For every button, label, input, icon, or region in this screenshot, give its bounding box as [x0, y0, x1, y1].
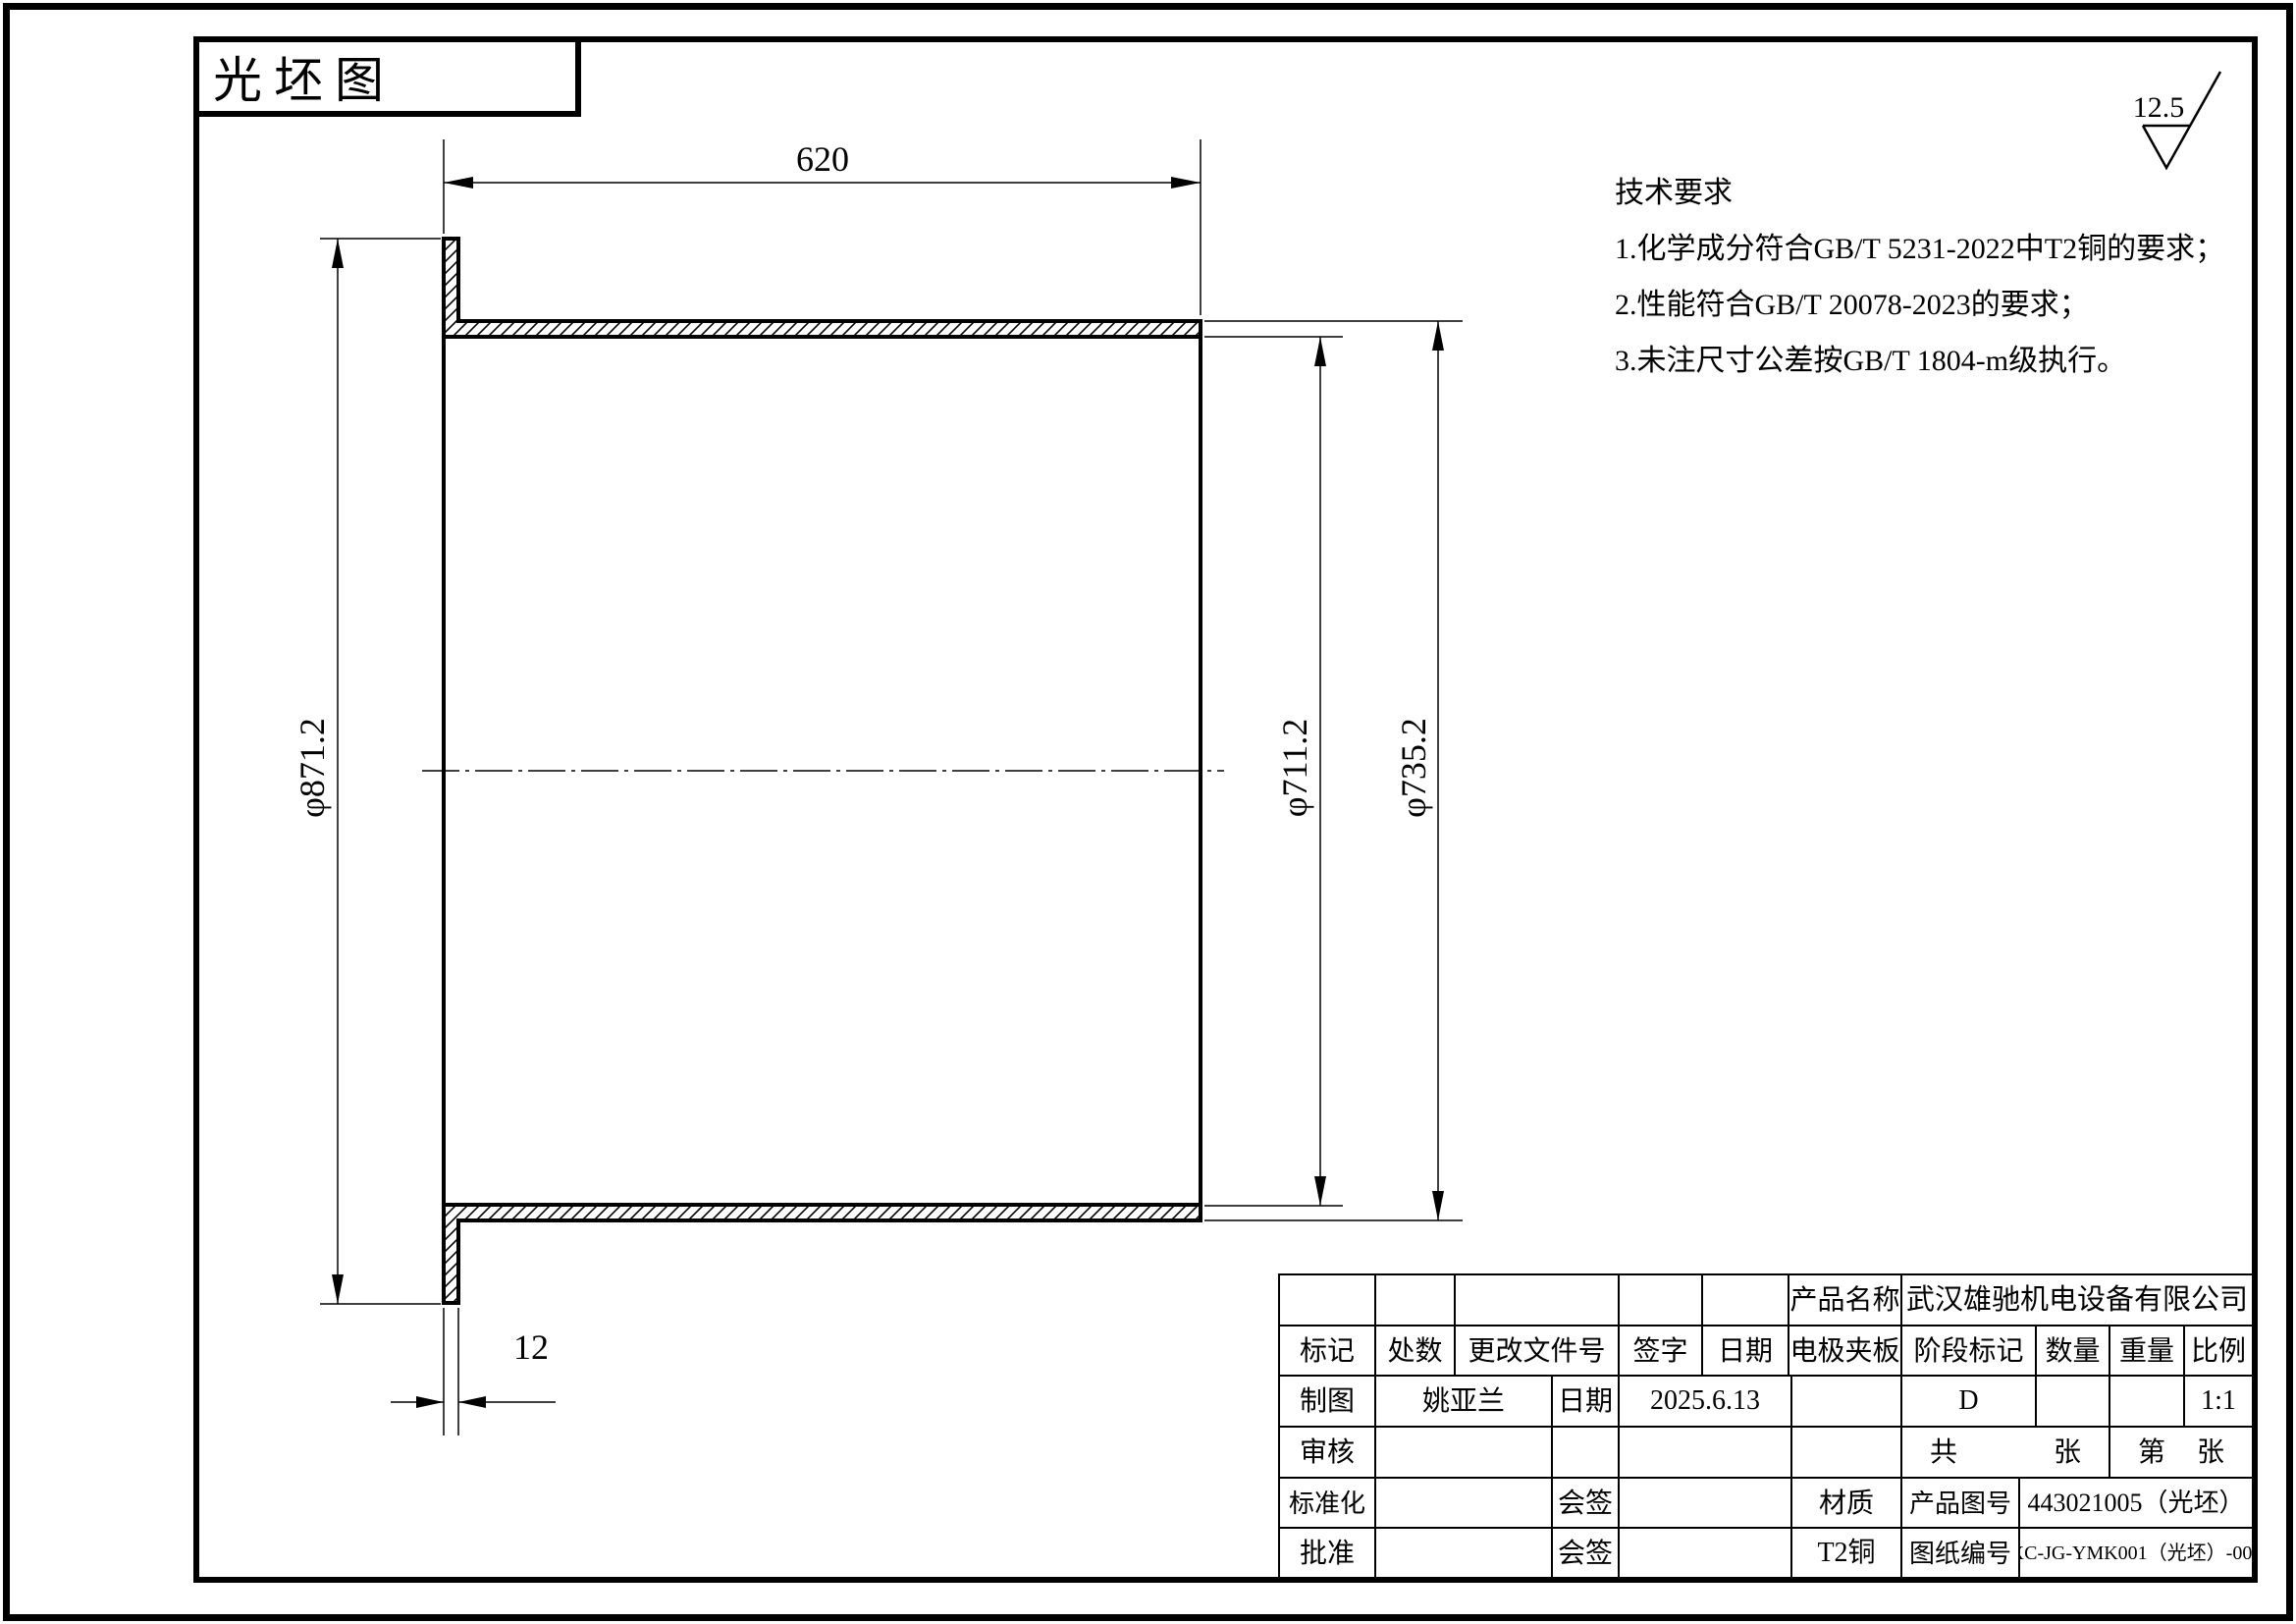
- dim-length-620: 620: [444, 139, 1201, 315]
- roughness-value: 12.5: [2133, 91, 2185, 124]
- tb-stage-mark-label: 阶段标记: [1900, 1325, 2035, 1375]
- dim-outer-diameter-text: φ735.2: [1394, 718, 1433, 818]
- tb-product-name-label: 产品名称: [1788, 1273, 1900, 1325]
- tb-cell-empty: [2035, 1375, 2109, 1426]
- arrowhead: [332, 1274, 344, 1304]
- dim-bore-diameter-text: φ711.2: [1275, 719, 1314, 817]
- tb-date-label: 日期: [1701, 1325, 1788, 1375]
- tb-cell-empty: [1790, 1426, 1900, 1477]
- tb-change-doc-label: 更改文件号: [1454, 1325, 1618, 1375]
- tb-cell-empty: [1374, 1527, 1551, 1577]
- tb-product-no-label: 产品图号: [1900, 1477, 2018, 1527]
- tb-cell-empty: [1701, 1273, 1788, 1325]
- part-bottom-wall-and-flange: [444, 1205, 1201, 1303]
- tb-signature-label: 签字: [1618, 1325, 1701, 1375]
- tb-drawing-no: XC-JG-YMK001（光坯）-005: [2018, 1527, 2252, 1577]
- arrowhead: [1314, 1176, 1326, 1206]
- tb-drawing-no-label: 图纸编号: [1900, 1527, 2018, 1577]
- tb-total-label: 共: [1930, 1438, 1957, 1466]
- tb-countersign-label: 会签: [1551, 1477, 1618, 1527]
- dim-flange-diameter: φ871.2: [293, 239, 441, 1304]
- tb-product-name-value: 电极夹板: [1788, 1325, 1900, 1375]
- part-top-wall-and-flange: [444, 239, 1201, 337]
- tb-sheet-no-cell: 第 张: [2109, 1426, 2252, 1477]
- tb-cell-empty: [1618, 1426, 1790, 1477]
- tb-cell-empty: [1551, 1426, 1618, 1477]
- tb-stage-value: D: [1900, 1375, 2035, 1426]
- tb-draft-date: 2025.6.13: [1618, 1375, 1790, 1426]
- dim-flange-thickness: 12: [391, 1308, 556, 1435]
- tb-cell-empty: [1278, 1273, 1374, 1325]
- tb-cell-empty: [1618, 1273, 1701, 1325]
- arrowhead: [1432, 1191, 1444, 1220]
- tb-mark-label: 标记: [1278, 1325, 1374, 1375]
- tb-countersign-label: 会签: [1551, 1527, 1618, 1577]
- tb-company-name: 武汉雄驰机电设备有限公司: [1900, 1273, 2252, 1325]
- tb-cell-empty: [1790, 1375, 1900, 1426]
- surface-roughness-symbol: 12.5: [2133, 72, 2220, 168]
- tb-total-sheets-cell: 共 张: [1900, 1426, 2109, 1477]
- tb-scale-label: 比例: [2183, 1325, 2252, 1375]
- arrowhead: [458, 1396, 486, 1408]
- drawing-sheet: 光坯图 技术要求 1.化学成分符合GB/T 5231-2022中T2铜的要求； …: [0, 0, 2296, 1624]
- tb-product-no: 443021005（光坯）: [2018, 1477, 2252, 1527]
- tb-cell-empty: [1618, 1527, 1790, 1577]
- dim-flange-diameter-text: φ871.2: [293, 718, 332, 818]
- tb-cell-empty: [1618, 1477, 1790, 1527]
- dim-outer-diameter: φ735.2: [1204, 321, 1463, 1220]
- tb-drafter-label: 制图: [1278, 1375, 1374, 1426]
- arrowhead: [1171, 177, 1201, 189]
- tb-checker-label: 审核: [1278, 1426, 1374, 1477]
- tb-weight-label: 重量: [2109, 1325, 2183, 1375]
- dim-length-text: 620: [796, 139, 849, 179]
- tb-draft-date-label: 日期: [1551, 1375, 1618, 1426]
- tb-cell-empty: [1374, 1477, 1551, 1527]
- arrowhead: [1432, 321, 1444, 351]
- tb-standardization-label: 标准化: [1278, 1477, 1374, 1527]
- title-block: 产品名称 武汉雄驰机电设备有限公司 标记 处数 更改文件号 签字 日期 电极夹板…: [1278, 1273, 2252, 1577]
- tb-cell-empty: [2109, 1375, 2183, 1426]
- arrowhead: [444, 177, 473, 189]
- arrowhead: [416, 1396, 444, 1408]
- dim-bore-diameter: φ711.2: [1204, 337, 1343, 1206]
- tb-sheet-label: 张: [2197, 1438, 2224, 1466]
- tb-approver-label: 批准: [1278, 1527, 1374, 1577]
- tb-count-label: 处数: [1374, 1325, 1454, 1375]
- tb-material-label: 材质: [1790, 1477, 1900, 1527]
- tb-scale-value: 1:1: [2183, 1375, 2252, 1426]
- tb-total-sheets-label: 张: [2054, 1438, 2081, 1466]
- arrowhead: [332, 239, 344, 268]
- tb-cell-empty: [1454, 1273, 1618, 1325]
- tb-material-value: T2铜: [1790, 1527, 1900, 1577]
- dim-flange-thickness-text: 12: [513, 1327, 549, 1367]
- tb-cell-empty: [1374, 1426, 1551, 1477]
- tb-quantity-label: 数量: [2035, 1325, 2109, 1375]
- tb-drafter-name: 姚亚兰: [1374, 1375, 1551, 1426]
- tb-cell-empty: [1374, 1273, 1454, 1325]
- arrowhead: [1314, 337, 1326, 366]
- tb-sheet-no-label: 第: [2138, 1438, 2165, 1466]
